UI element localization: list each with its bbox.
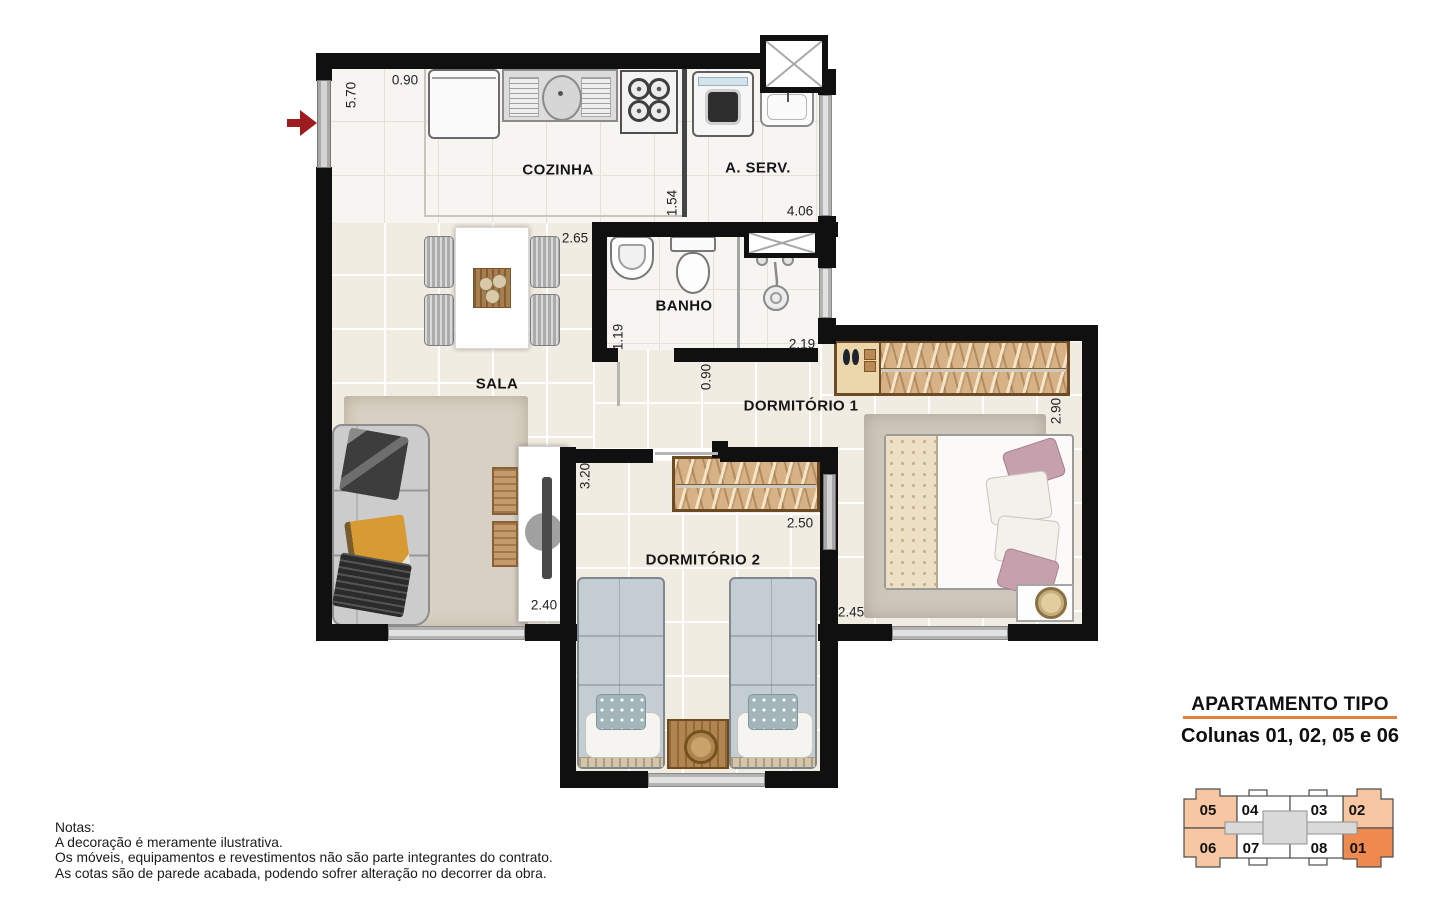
toilet-bowl [676, 252, 710, 294]
dining-chair [424, 294, 454, 346]
legend-subtitle: Colunas 01, 02, 05 e 06 [1173, 725, 1407, 748]
wall [560, 771, 648, 788]
wall [1082, 325, 1098, 641]
dining-chair [530, 236, 560, 288]
wall [316, 624, 388, 641]
shower-icon [748, 252, 808, 316]
duct-shaft [744, 228, 820, 258]
shoes-icon [852, 349, 859, 365]
keyplan-label-05: 05 [1200, 802, 1217, 819]
room-label-cozinha: COZINHA [522, 162, 593, 179]
toilet-tank [670, 236, 716, 252]
wall [818, 216, 836, 268]
dim-hall: 0.90 [699, 364, 714, 390]
side-table [492, 521, 518, 567]
bed-foot [579, 757, 663, 767]
legend-underline [1183, 716, 1397, 719]
sink-drainboard [509, 77, 539, 117]
entry-door [317, 80, 331, 168]
washing-machine [692, 71, 754, 137]
lamp [1035, 587, 1067, 619]
notes-title: Notas: [55, 820, 553, 835]
wall [818, 624, 892, 641]
room-label-dormitorio1: DORMITÓRIO 1 [744, 398, 859, 415]
legend-title: APARTAMENTO TIPO [1183, 694, 1397, 716]
stove-burner [628, 100, 650, 122]
centerpiece-bowl [485, 289, 500, 304]
notes-line: Os móveis, equipamentos e revestimentos … [55, 850, 553, 865]
washer-drum [708, 92, 738, 122]
room-label-dormitorio2: DORMITÓRIO 2 [646, 552, 761, 569]
room-label-banho: BANHO [656, 298, 713, 315]
dim-dorm2-depth: 3.20 [578, 463, 593, 489]
wall [560, 449, 653, 463]
kitchen-zone-line [424, 69, 426, 217]
kitchen-zone-line [424, 215, 682, 217]
lamp [684, 730, 718, 764]
dim-banho-depth: 1.19 [611, 324, 626, 350]
shower-partition [737, 237, 740, 348]
service-window [819, 95, 832, 216]
dorm2-window [648, 773, 765, 787]
dim-banho-width: 2.19 [789, 337, 815, 352]
wall [316, 53, 768, 69]
bed-foot [731, 757, 815, 767]
shoe-box [864, 361, 876, 372]
accent-pillow [748, 694, 798, 730]
side-table [492, 467, 518, 515]
dim-aserv: 4.06 [787, 204, 813, 219]
tv [542, 477, 552, 579]
bathroom-window [819, 268, 832, 318]
stove-burner [648, 100, 670, 122]
stove-burner [648, 78, 670, 100]
sink-faucet [558, 91, 563, 96]
stove-burner [628, 78, 650, 100]
dim-dorm1-width: 2.45 [838, 605, 864, 620]
dim-sala-top: 2.65 [562, 231, 588, 246]
dining-chair [424, 236, 454, 288]
dim-dorm1-depth: 2.90 [1049, 398, 1064, 424]
wall [720, 447, 822, 462]
dining-chair [530, 294, 560, 346]
keyplan-label-08: 08 [1311, 840, 1328, 857]
wardrobe-dorm1 [834, 340, 1070, 396]
bed-blanket [886, 436, 938, 588]
notes-line: As cotas são de parede acabada, podendo … [55, 866, 553, 881]
bathroom-sink [610, 236, 654, 280]
keyplan-label-03: 03 [1311, 802, 1328, 819]
wall [712, 441, 728, 458]
wall [560, 447, 576, 788]
wall [1008, 624, 1098, 641]
wall [316, 167, 332, 641]
laundry-tank [760, 87, 814, 127]
kitchen-sink-counter [502, 69, 618, 122]
floor-plan-page: COZINHA A. SERV. BANHO SALA DORMITÓRIO 1… [0, 0, 1440, 900]
wall [316, 53, 332, 81]
dim-sala-width: 2.40 [531, 598, 557, 613]
room-label-sala: SALA [476, 376, 518, 393]
keyplan-label-07: 07 [1243, 840, 1260, 857]
shoe-box [864, 349, 876, 360]
keyplan-label-02: 02 [1349, 802, 1366, 819]
dim-cozinha: 1.54 [665, 190, 680, 216]
duct-shaft [760, 35, 828, 93]
dorm2-door-leaf [655, 452, 718, 455]
stove [620, 70, 678, 134]
dim-left-side: 5.70 [344, 82, 359, 108]
sink-drainboard [581, 77, 611, 117]
shoe-shelf [837, 343, 881, 393]
wall [818, 325, 1098, 341]
table-centerpiece [473, 268, 511, 308]
dim-dorm2-width: 2.50 [787, 516, 813, 531]
accent-pillow [596, 694, 646, 730]
centerpiece-bowl [492, 274, 507, 289]
notes-line: A decoração é meramente ilustrativa. [55, 835, 553, 850]
wardrobe-dorm2 [672, 456, 820, 512]
fridge [428, 69, 500, 139]
dim-entry: 0.90 [392, 73, 418, 88]
entrance-arrow-icon [287, 109, 317, 137]
sink-bowl [542, 75, 582, 121]
shoes-icon [843, 349, 850, 365]
keyplan-notch [1309, 858, 1327, 865]
dorm1-window [892, 626, 1008, 640]
room-label-a-serv: A. SERV. [725, 160, 791, 177]
keyplan-label-04: 04 [1242, 802, 1259, 819]
sofa-pillow [339, 427, 409, 500]
building-key-plan: 05 04 03 02 06 07 08 01 [1181, 782, 1405, 874]
dorm1-door [823, 474, 836, 550]
keyplan-label-06: 06 [1200, 840, 1217, 857]
keyplan-core [1263, 811, 1307, 844]
bathroom-door-leaf [617, 362, 620, 406]
kitchen-partition [682, 69, 687, 217]
notes-block: Notas: A decoração é meramente ilustrati… [55, 820, 553, 881]
wall [592, 222, 607, 362]
keyplan-notch [1249, 858, 1267, 865]
living-room-window [388, 626, 525, 640]
keyplan-label-01: 01 [1350, 840, 1367, 857]
